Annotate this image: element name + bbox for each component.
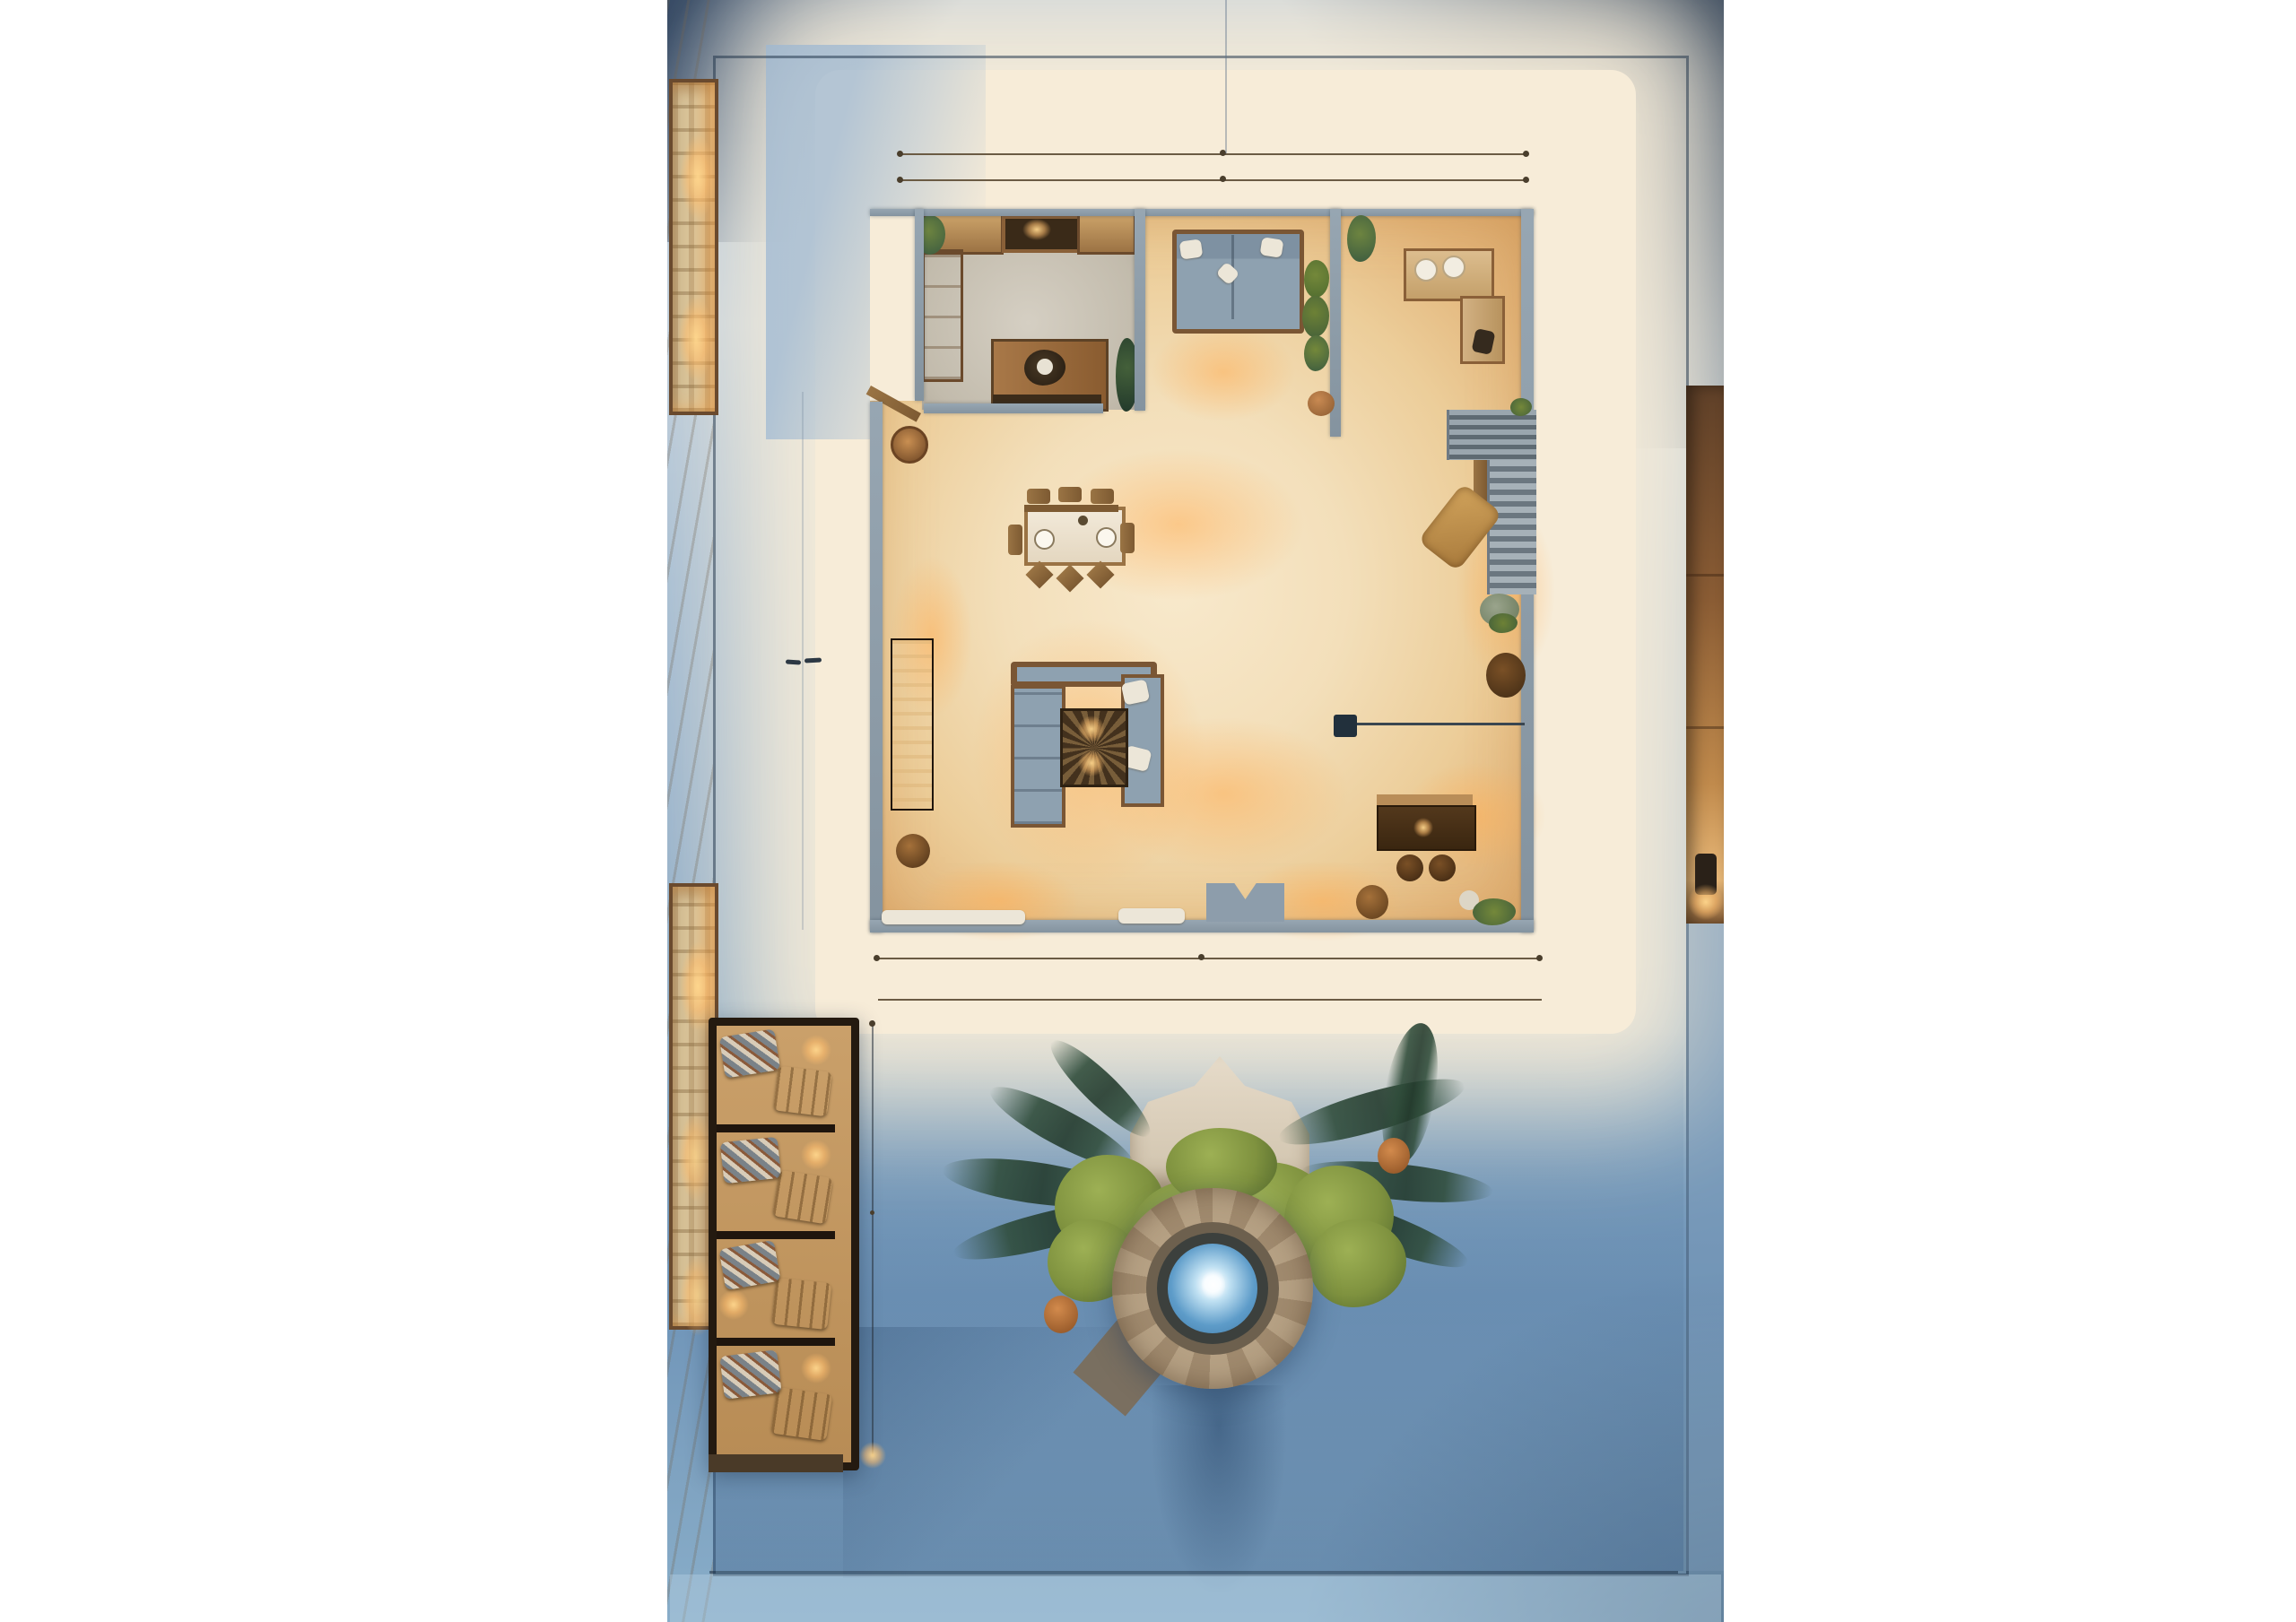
survey-dot <box>897 177 903 183</box>
patterned-pillow <box>719 1028 780 1078</box>
walkway-notch <box>870 209 917 401</box>
pole-lamp-rod <box>1357 723 1525 725</box>
terracotta-pot <box>1378 1138 1410 1174</box>
media-console <box>891 638 934 811</box>
water-sparkle <box>1202 1270 1225 1300</box>
fountain-shadow <box>1152 1385 1286 1592</box>
shelf-row <box>717 1132 835 1239</box>
survey-line-top-2 <box>901 179 1528 181</box>
folded-cushion <box>773 1066 832 1117</box>
survey-dot <box>1536 955 1543 961</box>
wall-uplight <box>1152 323 1295 421</box>
table-decor <box>1078 516 1088 525</box>
candle-glow <box>1078 750 1105 776</box>
lounge-wall-right <box>1135 209 1145 411</box>
right-edge-lower <box>1686 924 1724 1571</box>
wicker-sphere <box>896 834 930 868</box>
dining-chair <box>1008 525 1022 555</box>
lounge-sofa-top-right <box>1077 213 1136 255</box>
bench-cushion <box>1118 908 1185 924</box>
bench-cushion <box>882 910 1025 924</box>
patterned-pillow <box>720 1137 781 1184</box>
shelf-glow <box>801 1353 831 1383</box>
door-handle <box>804 658 822 664</box>
patterned-pillow <box>718 1240 780 1290</box>
pillow <box>1179 239 1204 259</box>
shelf-row <box>717 1346 835 1446</box>
hanging-cord <box>872 1020 874 1456</box>
survey-line-bottom-2 <box>878 999 1542 1001</box>
pillow <box>1260 237 1284 258</box>
planter-pot <box>1308 391 1335 416</box>
dining-table-edge <box>1024 505 1118 512</box>
shelf-row <box>717 1239 835 1346</box>
cabinet-knob-light <box>1413 818 1433 837</box>
survey-dot <box>874 955 880 961</box>
niche-lamp-glow <box>1688 884 1724 920</box>
cord-dot <box>869 1020 875 1027</box>
cord-dot <box>870 1210 874 1215</box>
desk-plate <box>1414 258 1438 282</box>
patterned-pillow <box>719 1349 781 1399</box>
wall-crease <box>802 392 804 930</box>
lounge-sofa-left <box>922 249 963 382</box>
decor-ball <box>1037 359 1053 375</box>
dining-chair <box>1091 489 1114 504</box>
wall-left <box>870 402 883 932</box>
courtyard-floor-strip <box>670 1574 1721 1622</box>
right-warm-niche <box>1686 386 1724 924</box>
wall-top <box>870 209 1534 216</box>
survey-dot <box>1220 176 1226 182</box>
niche-shelf-line <box>1686 726 1724 729</box>
shelf-glow <box>801 1035 831 1065</box>
desk-plate <box>1442 256 1465 279</box>
survey-dot <box>1523 177 1529 183</box>
folded-cushion <box>771 1387 833 1441</box>
pole-lamp-head <box>1334 715 1357 737</box>
console-glow <box>1022 219 1051 240</box>
plate <box>1034 529 1055 550</box>
staircase-lower-flight <box>1487 460 1536 594</box>
survey-dot <box>1523 151 1529 157</box>
aerial-photo <box>667 0 1724 1622</box>
wall-floor-line <box>709 1571 1678 1574</box>
dining-chair <box>1027 489 1050 504</box>
terracotta-pot <box>1044 1296 1078 1333</box>
shelf-base <box>709 1454 843 1472</box>
dining-chair <box>1058 487 1082 502</box>
lounge-wall-bottom <box>924 403 1103 413</box>
stool <box>1429 854 1456 881</box>
cord-bulb-glow <box>859 1442 886 1469</box>
survey-line-top-1 <box>901 153 1528 155</box>
hanging-wire <box>1225 0 1227 153</box>
niche-glow <box>680 134 716 220</box>
sectional-left <box>1011 685 1065 828</box>
wicker-ball <box>1356 885 1388 919</box>
screenshot-canvas <box>0 0 2296 1622</box>
candle-glow <box>1078 716 1105 742</box>
shelf-glow <box>718 1289 749 1320</box>
survey-dot <box>1198 954 1205 960</box>
shelf-row <box>717 1026 835 1132</box>
stool <box>1396 854 1423 881</box>
folded-cushion <box>771 1278 831 1330</box>
survey-line-bottom-1 <box>878 958 1542 959</box>
staircase-upper-flight <box>1447 410 1536 460</box>
folded-cushion <box>772 1170 832 1225</box>
lounge-wall-left <box>915 209 924 401</box>
plate <box>1096 527 1117 548</box>
dining-chair <box>1120 523 1135 553</box>
pouf <box>1486 653 1526 698</box>
pillow-shelf-column <box>709 1018 859 1470</box>
niche-shelf-line <box>1686 574 1724 577</box>
round-stool <box>891 426 928 464</box>
survey-dot <box>897 151 903 157</box>
niche-glow <box>678 296 714 381</box>
shelf-glow <box>801 1140 831 1170</box>
